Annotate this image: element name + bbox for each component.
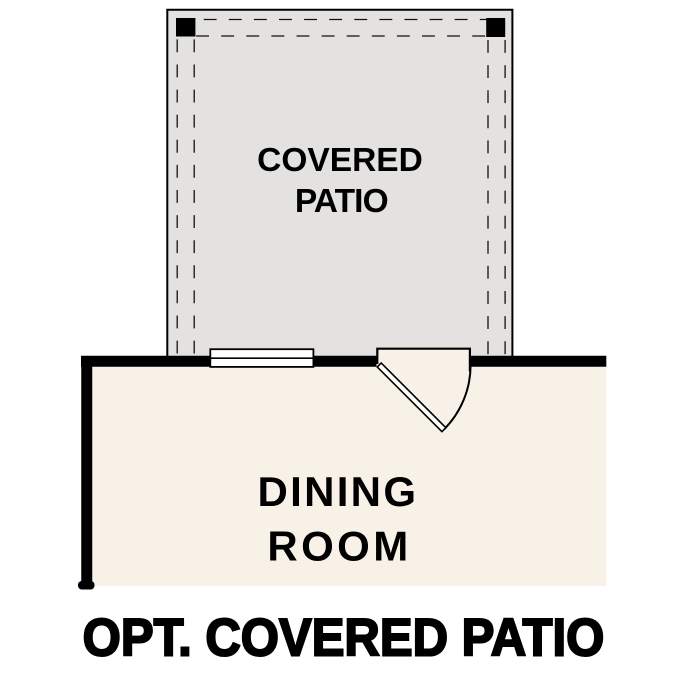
svg-text:OPT. COVERED PATIO: OPT. COVERED PATIO [83, 608, 605, 667]
svg-text:COVERED: COVERED [257, 142, 423, 179]
svg-text:PATIO: PATIO [295, 183, 388, 220]
svg-text:DINING: DINING [257, 468, 418, 515]
svg-text:ROOM: ROOM [267, 523, 411, 570]
